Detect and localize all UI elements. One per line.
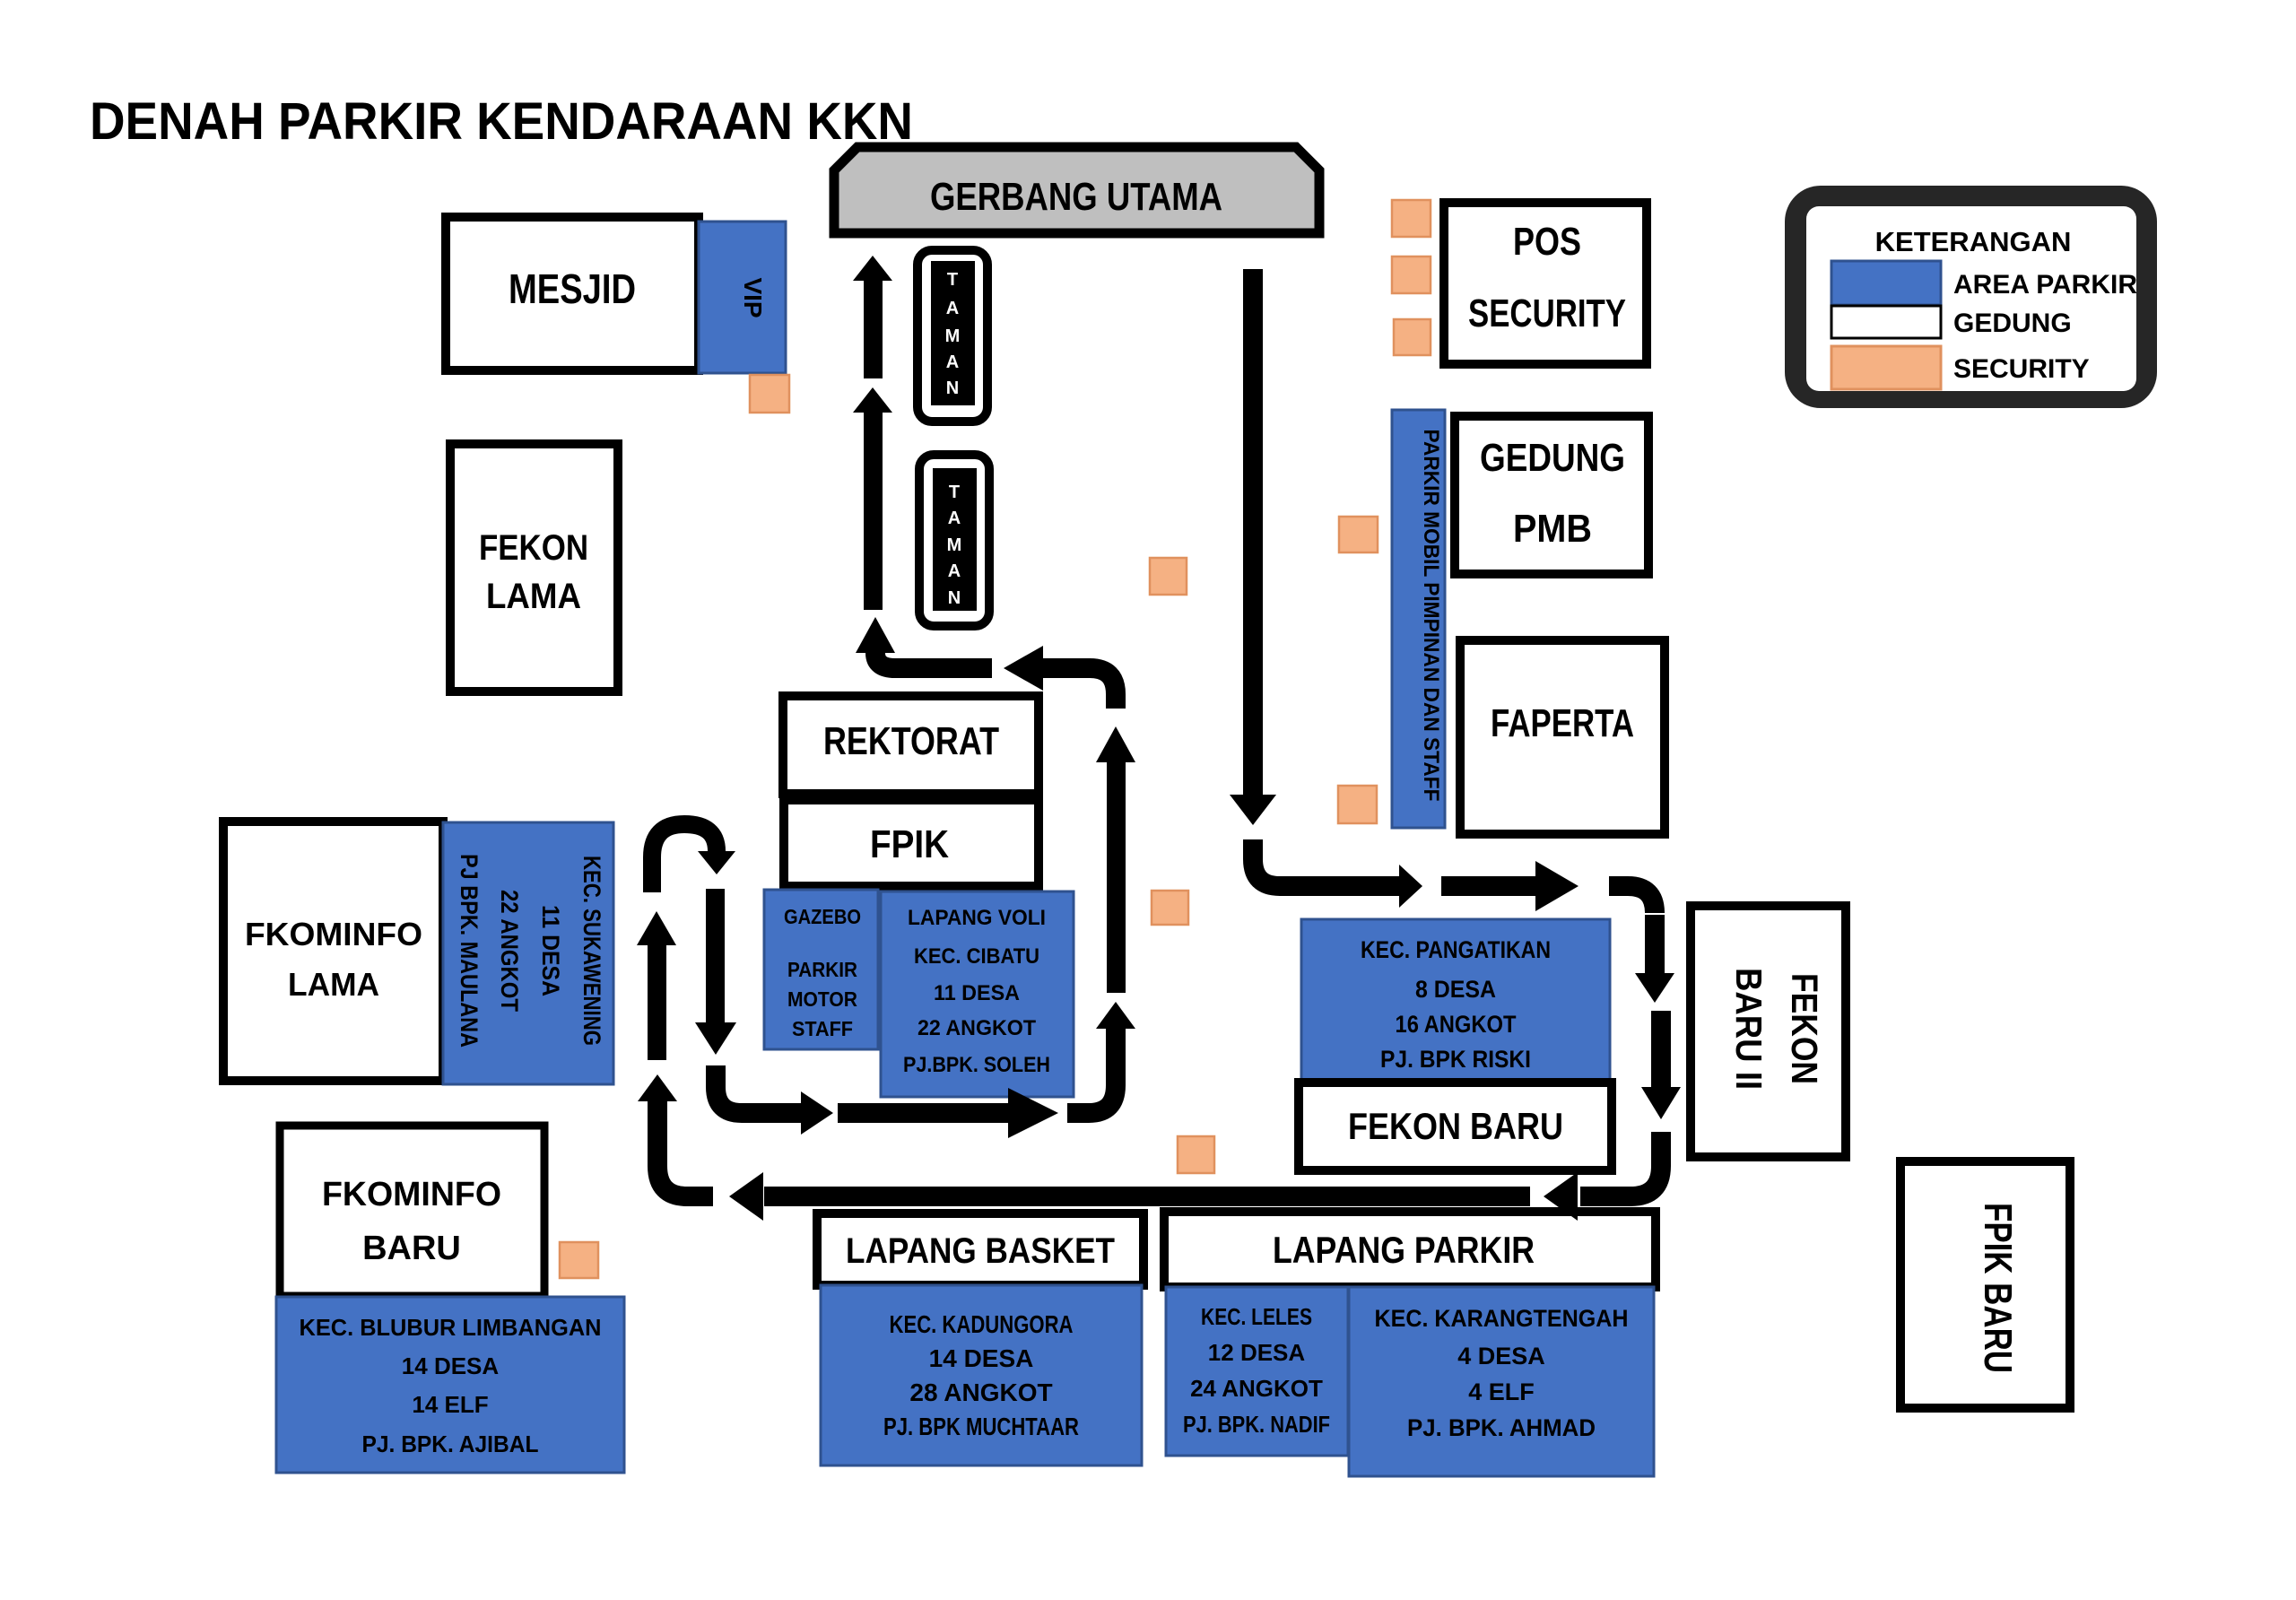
svg-text:PJ. BPK. AHMAD: PJ. BPK. AHMAD bbox=[1407, 1414, 1596, 1441]
svg-text:M: M bbox=[947, 535, 962, 555]
svg-text:GERBANG UTAMA: GERBANG UTAMA bbox=[930, 175, 1222, 219]
svg-text:KEC. PANGATIKAN: KEC. PANGATIKAN bbox=[1361, 936, 1551, 963]
svg-text:PJ. BPK RISKI: PJ. BPK RISKI bbox=[1380, 1046, 1531, 1073]
svg-text:PJ. BPK MUCHTAAR: PJ. BPK MUCHTAAR bbox=[883, 1413, 1079, 1440]
svg-text:A: A bbox=[946, 352, 959, 372]
svg-text:11 DESA: 11 DESA bbox=[537, 905, 564, 996]
svg-text:SECURITY: SECURITY bbox=[1953, 354, 2090, 384]
svg-text:GEDUNG: GEDUNG bbox=[1953, 309, 2072, 338]
svg-text:AREA PARKIR: AREA PARKIR bbox=[1953, 270, 2137, 300]
svg-text:KEC. KADUNGORA: KEC. KADUNGORA bbox=[890, 1310, 1074, 1338]
svg-text:GAZEBO: GAZEBO bbox=[784, 905, 861, 928]
svg-text:KETERANGAN: KETERANGAN bbox=[1875, 226, 2072, 257]
svg-text:PJ. BPK. AJIBAL: PJ. BPK. AJIBAL bbox=[362, 1430, 539, 1457]
svg-text:BARU: BARU bbox=[362, 1230, 461, 1267]
svg-text:KEC. LELES: KEC. LELES bbox=[1201, 1303, 1312, 1330]
svg-text:A: A bbox=[948, 509, 961, 528]
svg-text:PJ BPK. MAULANA: PJ BPK. MAULANA bbox=[456, 854, 483, 1048]
svg-text:FPIK BARU: FPIK BARU bbox=[1976, 1203, 2020, 1373]
svg-text:BARU II: BARU II bbox=[1728, 968, 1770, 1090]
svg-text:14 DESA: 14 DESA bbox=[929, 1344, 1034, 1372]
svg-text:VIP: VIP bbox=[739, 277, 767, 317]
svg-text:T: T bbox=[947, 270, 958, 290]
svg-text:22 ANGKOT: 22 ANGKOT bbox=[496, 890, 523, 1012]
svg-text:T: T bbox=[949, 483, 960, 502]
svg-text:STAFF: STAFF bbox=[792, 1017, 853, 1040]
svg-text:PARKIR: PARKIR bbox=[787, 958, 857, 981]
svg-text:FKOMINFO: FKOMINFO bbox=[322, 1176, 501, 1213]
svg-text:KEC. CIBATU: KEC. CIBATU bbox=[914, 944, 1039, 969]
svg-text:FEKON: FEKON bbox=[1784, 973, 1825, 1084]
svg-text:A: A bbox=[948, 561, 961, 581]
svg-text:FKOMINFO: FKOMINFO bbox=[245, 916, 422, 952]
svg-text:KEC. KARANGTENGAH: KEC. KARANGTENGAH bbox=[1375, 1305, 1629, 1332]
svg-text:14 DESA: 14 DESA bbox=[402, 1352, 500, 1379]
svg-text:14 ELF: 14 ELF bbox=[412, 1391, 488, 1418]
svg-text:22 ANGKOT: 22 ANGKOT bbox=[918, 1016, 1036, 1040]
svg-text:LAPANG PARKIR: LAPANG PARKIR bbox=[1273, 1229, 1535, 1271]
svg-text:16 ANGKOT: 16 ANGKOT bbox=[1396, 1011, 1517, 1038]
svg-text:LAMA: LAMA bbox=[288, 966, 379, 1003]
svg-text:PARKIR MOBIL PIMPINAN DAN STAF: PARKIR MOBIL PIMPINAN DAN STAFF bbox=[1419, 430, 1443, 802]
svg-text:PJ. BPK. NADIF: PJ. BPK. NADIF bbox=[1183, 1411, 1330, 1438]
svg-text:8 DESA: 8 DESA bbox=[1415, 976, 1496, 1003]
svg-text:28 ANGKOT: 28 ANGKOT bbox=[909, 1378, 1052, 1406]
svg-text:A: A bbox=[946, 299, 959, 318]
svg-text:MESJID: MESJID bbox=[509, 265, 636, 312]
svg-text:LAMA: LAMA bbox=[486, 577, 581, 616]
svg-text:N: N bbox=[946, 378, 959, 398]
svg-text:PMB: PMB bbox=[1513, 507, 1592, 551]
svg-text:KEC. SUKAWENING: KEC. SUKAWENING bbox=[578, 856, 605, 1046]
svg-text:GEDUNG: GEDUNG bbox=[1480, 436, 1625, 480]
svg-text:FPIK: FPIK bbox=[870, 822, 949, 866]
svg-text:M: M bbox=[945, 326, 961, 346]
svg-text:4 ELF: 4 ELF bbox=[1468, 1378, 1535, 1405]
svg-text:REKTORAT: REKTORAT bbox=[823, 719, 999, 763]
svg-text:MOTOR: MOTOR bbox=[787, 987, 857, 1011]
svg-text:POS: POS bbox=[1513, 220, 1581, 264]
svg-text:PJ.BPK. SOLEH: PJ.BPK. SOLEH bbox=[903, 1053, 1050, 1077]
svg-text:FAPERTA: FAPERTA bbox=[1491, 701, 1634, 745]
svg-text:FEKON BARU: FEKON BARU bbox=[1348, 1105, 1563, 1147]
svg-text:SECURITY: SECURITY bbox=[1468, 291, 1626, 335]
svg-text:DENAH PARKIR KENDARAAN KKN: DENAH PARKIR KENDARAAN KKN bbox=[90, 92, 913, 151]
svg-text:24 ANGKOT: 24 ANGKOT bbox=[1190, 1375, 1323, 1402]
svg-text:11 DESA: 11 DESA bbox=[934, 981, 1020, 1005]
svg-text:4 DESA: 4 DESA bbox=[1457, 1343, 1545, 1370]
svg-text:FEKON: FEKON bbox=[479, 528, 588, 568]
svg-text:12 DESA: 12 DESA bbox=[1208, 1339, 1306, 1366]
svg-text:LAPANG BASKET: LAPANG BASKET bbox=[846, 1231, 1115, 1271]
svg-text:N: N bbox=[948, 588, 961, 608]
svg-text:LAPANG VOLI: LAPANG VOLI bbox=[908, 906, 1046, 930]
svg-text:KEC. BLUBUR LIMBANGAN: KEC. BLUBUR LIMBANGAN bbox=[300, 1314, 602, 1341]
